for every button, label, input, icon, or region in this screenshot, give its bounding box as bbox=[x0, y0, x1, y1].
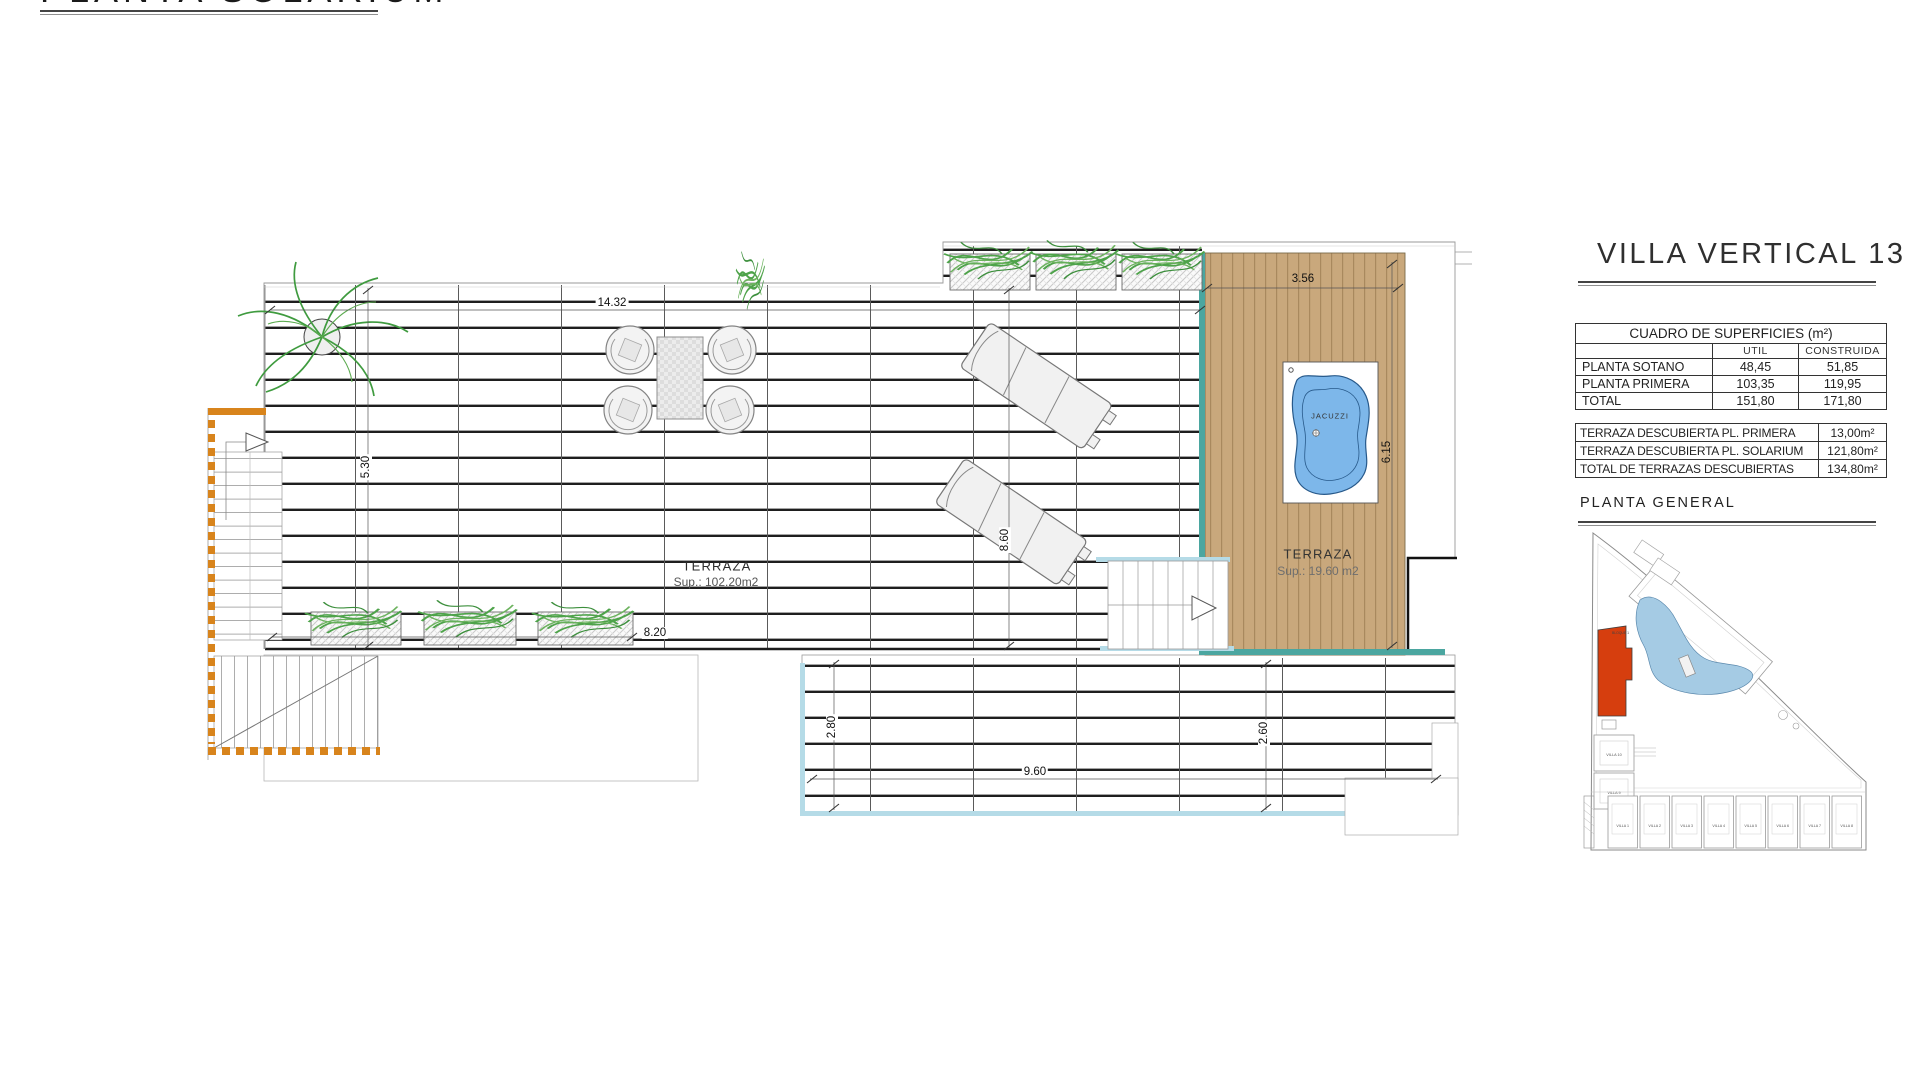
row-value: 134,80m² bbox=[1819, 460, 1887, 478]
deck-staircase bbox=[1096, 557, 1234, 651]
svg-text:VILLA 3: VILLA 3 bbox=[1680, 824, 1693, 828]
row-label: TERRAZA DESCUBIERTA PL. PRIMERA bbox=[1576, 424, 1819, 442]
title-underline-2 bbox=[40, 14, 378, 15]
svg-text:VILLA 7: VILLA 7 bbox=[1808, 824, 1821, 828]
svg-text:VILLA 1: VILLA 1 bbox=[1616, 824, 1629, 828]
blueprint-sheet: BLOQUE 2 BLOQUE 1 VILLA 10 VILLA 9 V bbox=[0, 0, 1920, 1080]
project-title: VILLA VERTICAL 13 bbox=[1597, 238, 1905, 271]
site-plan: BLOQUE 2 BLOQUE 1 VILLA 10 VILLA 9 V bbox=[1578, 530, 1878, 860]
svg-text:VILLA 8: VILLA 8 bbox=[1840, 824, 1853, 828]
row-label: PLANTA SOTANO bbox=[1576, 359, 1713, 376]
row-construida: 119,95 bbox=[1799, 376, 1887, 393]
dim-lower-left: 2.80 bbox=[826, 714, 838, 740]
dim-deck-width: 3.56 bbox=[1290, 273, 1316, 285]
svg-text:VILLA 4: VILLA 4 bbox=[1712, 824, 1725, 828]
table-row: TOTAL DE TERRAZAS DESCUBIERTAS 134,80m² bbox=[1576, 460, 1887, 478]
row-label: TERRAZA DESCUBIERTA PL. SOLARIUM bbox=[1576, 442, 1819, 460]
site-plan-underline-2 bbox=[1578, 525, 1876, 526]
svg-text:VILLA 10: VILLA 10 bbox=[1606, 753, 1621, 757]
surfaces-table: CUADRO DE SUPERFICIES (m²) UTIL CONSTRUI… bbox=[1575, 323, 1887, 410]
row-util: 48,45 bbox=[1713, 359, 1799, 376]
table-row: PLANTA SOTANO 48,45 51,85 bbox=[1576, 359, 1887, 376]
svg-text:VILLA 9: VILLA 9 bbox=[1607, 791, 1620, 795]
bottom-villas-row: VILLA 1 VILLA 2 VILLA 3 VILLA 4 VILLA 5 … bbox=[1608, 796, 1862, 848]
bloque1-label: BLOQUE 1 bbox=[1612, 631, 1629, 635]
deck-teal-edge-bottom bbox=[1205, 649, 1445, 655]
col-header-construida: CONSTRUIDA bbox=[1799, 344, 1887, 359]
table-row: TERRAZA DESCUBIERTA PL. PRIMERA 13,00m² bbox=[1576, 424, 1887, 442]
row-value: 13,00m² bbox=[1819, 424, 1887, 442]
dim-top-width: 14.32 bbox=[596, 297, 629, 309]
villa-10-box: VILLA 10 bbox=[1594, 735, 1634, 771]
row-construida: 51,85 bbox=[1799, 359, 1887, 376]
svg-text:VILLA 6: VILLA 6 bbox=[1776, 824, 1789, 828]
site-plan-title: PLANTA GENERAL bbox=[1580, 495, 1736, 511]
table-row: PLANTA PRIMERA 103,35 119,95 bbox=[1576, 376, 1887, 393]
dim-planter-row: 8.20 bbox=[642, 627, 668, 639]
pool-edge-bottom bbox=[800, 811, 1348, 816]
row-util: 151,80 bbox=[1713, 393, 1799, 410]
terrace-main-area: Sup.: 102.20m2 bbox=[674, 575, 759, 589]
dim-deck-height: 6.15 bbox=[1381, 439, 1393, 465]
project-title-underline bbox=[1578, 281, 1876, 283]
stair-edge-orange-bar bbox=[208, 408, 266, 415]
project-title-underline-2 bbox=[1578, 285, 1876, 286]
col-header-util: UTIL bbox=[1713, 344, 1799, 359]
row-label: TOTAL DE TERRAZAS DESCUBIERTAS bbox=[1576, 460, 1819, 478]
right-notch bbox=[1409, 558, 1457, 649]
terrace-deck-area: Sup.: 19.60 m2 bbox=[1277, 564, 1358, 578]
row-value: 121,80m² bbox=[1819, 442, 1887, 460]
surfaces-table-title: CUADRO DE SUPERFICIES (m²) bbox=[1576, 324, 1887, 344]
table-row: TOTAL 151,80 171,80 bbox=[1576, 393, 1887, 410]
dim-lower-bottom: 9.60 bbox=[1022, 766, 1048, 778]
dim-left-height: 5.30 bbox=[360, 454, 372, 480]
jacuzzi bbox=[1283, 362, 1378, 503]
pergola-notch-corner bbox=[1345, 778, 1458, 835]
terrace-deck-label: TERRAZA bbox=[1283, 547, 1352, 562]
terrace-main-label: TERRAZA bbox=[682, 559, 751, 574]
dim-mid-height: 8.60 bbox=[999, 527, 1011, 553]
site-plan-underline bbox=[1578, 521, 1876, 523]
row-util: 103,35 bbox=[1713, 376, 1799, 393]
row-construida: 171,80 bbox=[1799, 393, 1887, 410]
table-row: TERRAZA DESCUBIERTA PL. SOLARIUM 121,80m… bbox=[1576, 442, 1887, 460]
terraces-table: TERRAZA DESCUBIERTA PL. PRIMERA 13,00m² … bbox=[1575, 423, 1887, 478]
dim-lower-right: 2.60 bbox=[1258, 720, 1270, 746]
svg-text:VILLA 5: VILLA 5 bbox=[1744, 824, 1757, 828]
row-label: PLANTA PRIMERA bbox=[1576, 376, 1713, 393]
svg-text:VILLA 2: VILLA 2 bbox=[1648, 824, 1661, 828]
highlighted-villa-red bbox=[1598, 626, 1632, 716]
jacuzzi-label: JACUZZI bbox=[1311, 412, 1349, 421]
title-underline bbox=[40, 10, 378, 12]
pool-edge-left bbox=[800, 663, 805, 816]
row-label: TOTAL bbox=[1576, 393, 1713, 410]
